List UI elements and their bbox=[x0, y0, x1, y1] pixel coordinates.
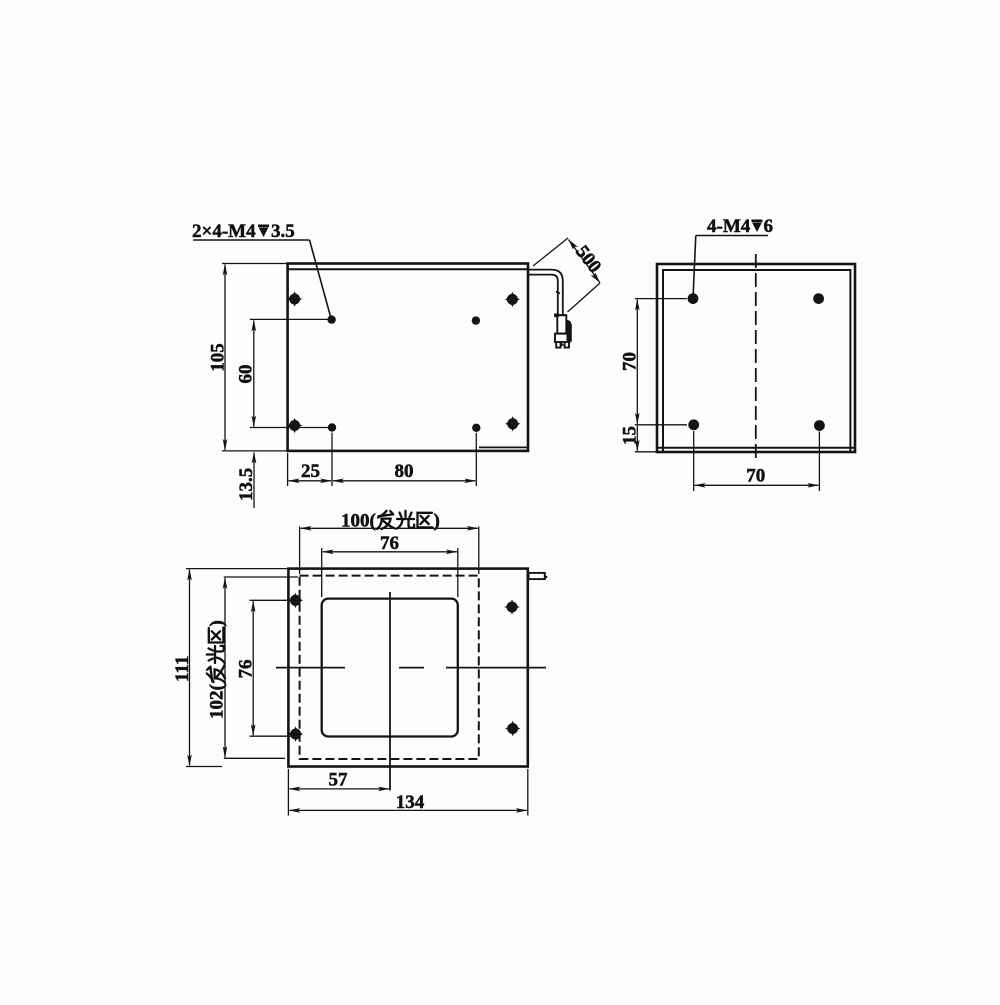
svg-text:76: 76 bbox=[380, 533, 399, 554]
svg-text:15: 15 bbox=[620, 426, 641, 445]
svg-text:76: 76 bbox=[236, 660, 257, 679]
svg-text:60: 60 bbox=[236, 365, 257, 384]
svg-text:): ) bbox=[207, 620, 228, 626]
svg-text:70: 70 bbox=[620, 352, 641, 371]
svg-text:134: 134 bbox=[396, 792, 425, 813]
svg-text:105: 105 bbox=[208, 343, 229, 372]
svg-text:6: 6 bbox=[764, 216, 774, 237]
svg-text:13.5: 13.5 bbox=[236, 468, 257, 501]
svg-text:111: 111 bbox=[172, 656, 193, 682]
svg-text:25: 25 bbox=[301, 461, 320, 482]
svg-text:57: 57 bbox=[329, 770, 349, 791]
svg-text:2×4-M4: 2×4-M4 bbox=[192, 221, 256, 242]
svg-text:3.5: 3.5 bbox=[271, 221, 295, 242]
svg-text:70: 70 bbox=[746, 466, 765, 487]
svg-text:): ) bbox=[434, 511, 440, 532]
svg-text:4-M4: 4-M4 bbox=[707, 216, 751, 237]
svg-text:102(: 102( bbox=[207, 684, 228, 719]
svg-text:80: 80 bbox=[395, 461, 414, 482]
svg-text:100(: 100( bbox=[341, 511, 376, 532]
